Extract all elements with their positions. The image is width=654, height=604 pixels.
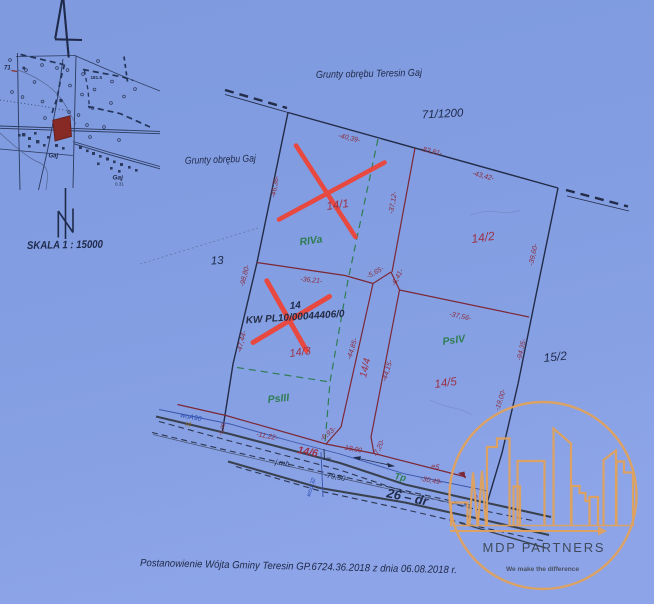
svg-text:181.5: 181.5 bbox=[91, 75, 103, 80]
svg-text:13: 13 bbox=[211, 255, 225, 268]
svg-text:We make the difference: We make the difference bbox=[506, 566, 579, 573]
svg-text:15/2: 15/2 bbox=[543, 349, 568, 365]
svg-text:PsIII: PsIII bbox=[267, 392, 291, 406]
svg-text:Gaj: Gaj bbox=[49, 154, 59, 160]
svg-text:0.31: 0.31 bbox=[115, 182, 124, 187]
svg-text:14: 14 bbox=[289, 300, 301, 312]
svg-text:71: 71 bbox=[4, 66, 11, 72]
svg-text:e5: e5 bbox=[431, 463, 440, 471]
svg-text:MDP PARTNERS: MDP PARTNERS bbox=[483, 540, 604, 555]
svg-text:Tp: Tp bbox=[393, 471, 407, 484]
svg-text:SKALA 1 : 15000: SKALA 1 : 15000 bbox=[27, 239, 104, 252]
svg-text:Gaj: Gaj bbox=[113, 175, 124, 182]
svg-text:71/1200: 71/1200 bbox=[422, 107, 465, 121]
svg-text:Grunty obrębu Teresin Gaj: Grunty obrębu Teresin Gaj bbox=[316, 68, 423, 81]
